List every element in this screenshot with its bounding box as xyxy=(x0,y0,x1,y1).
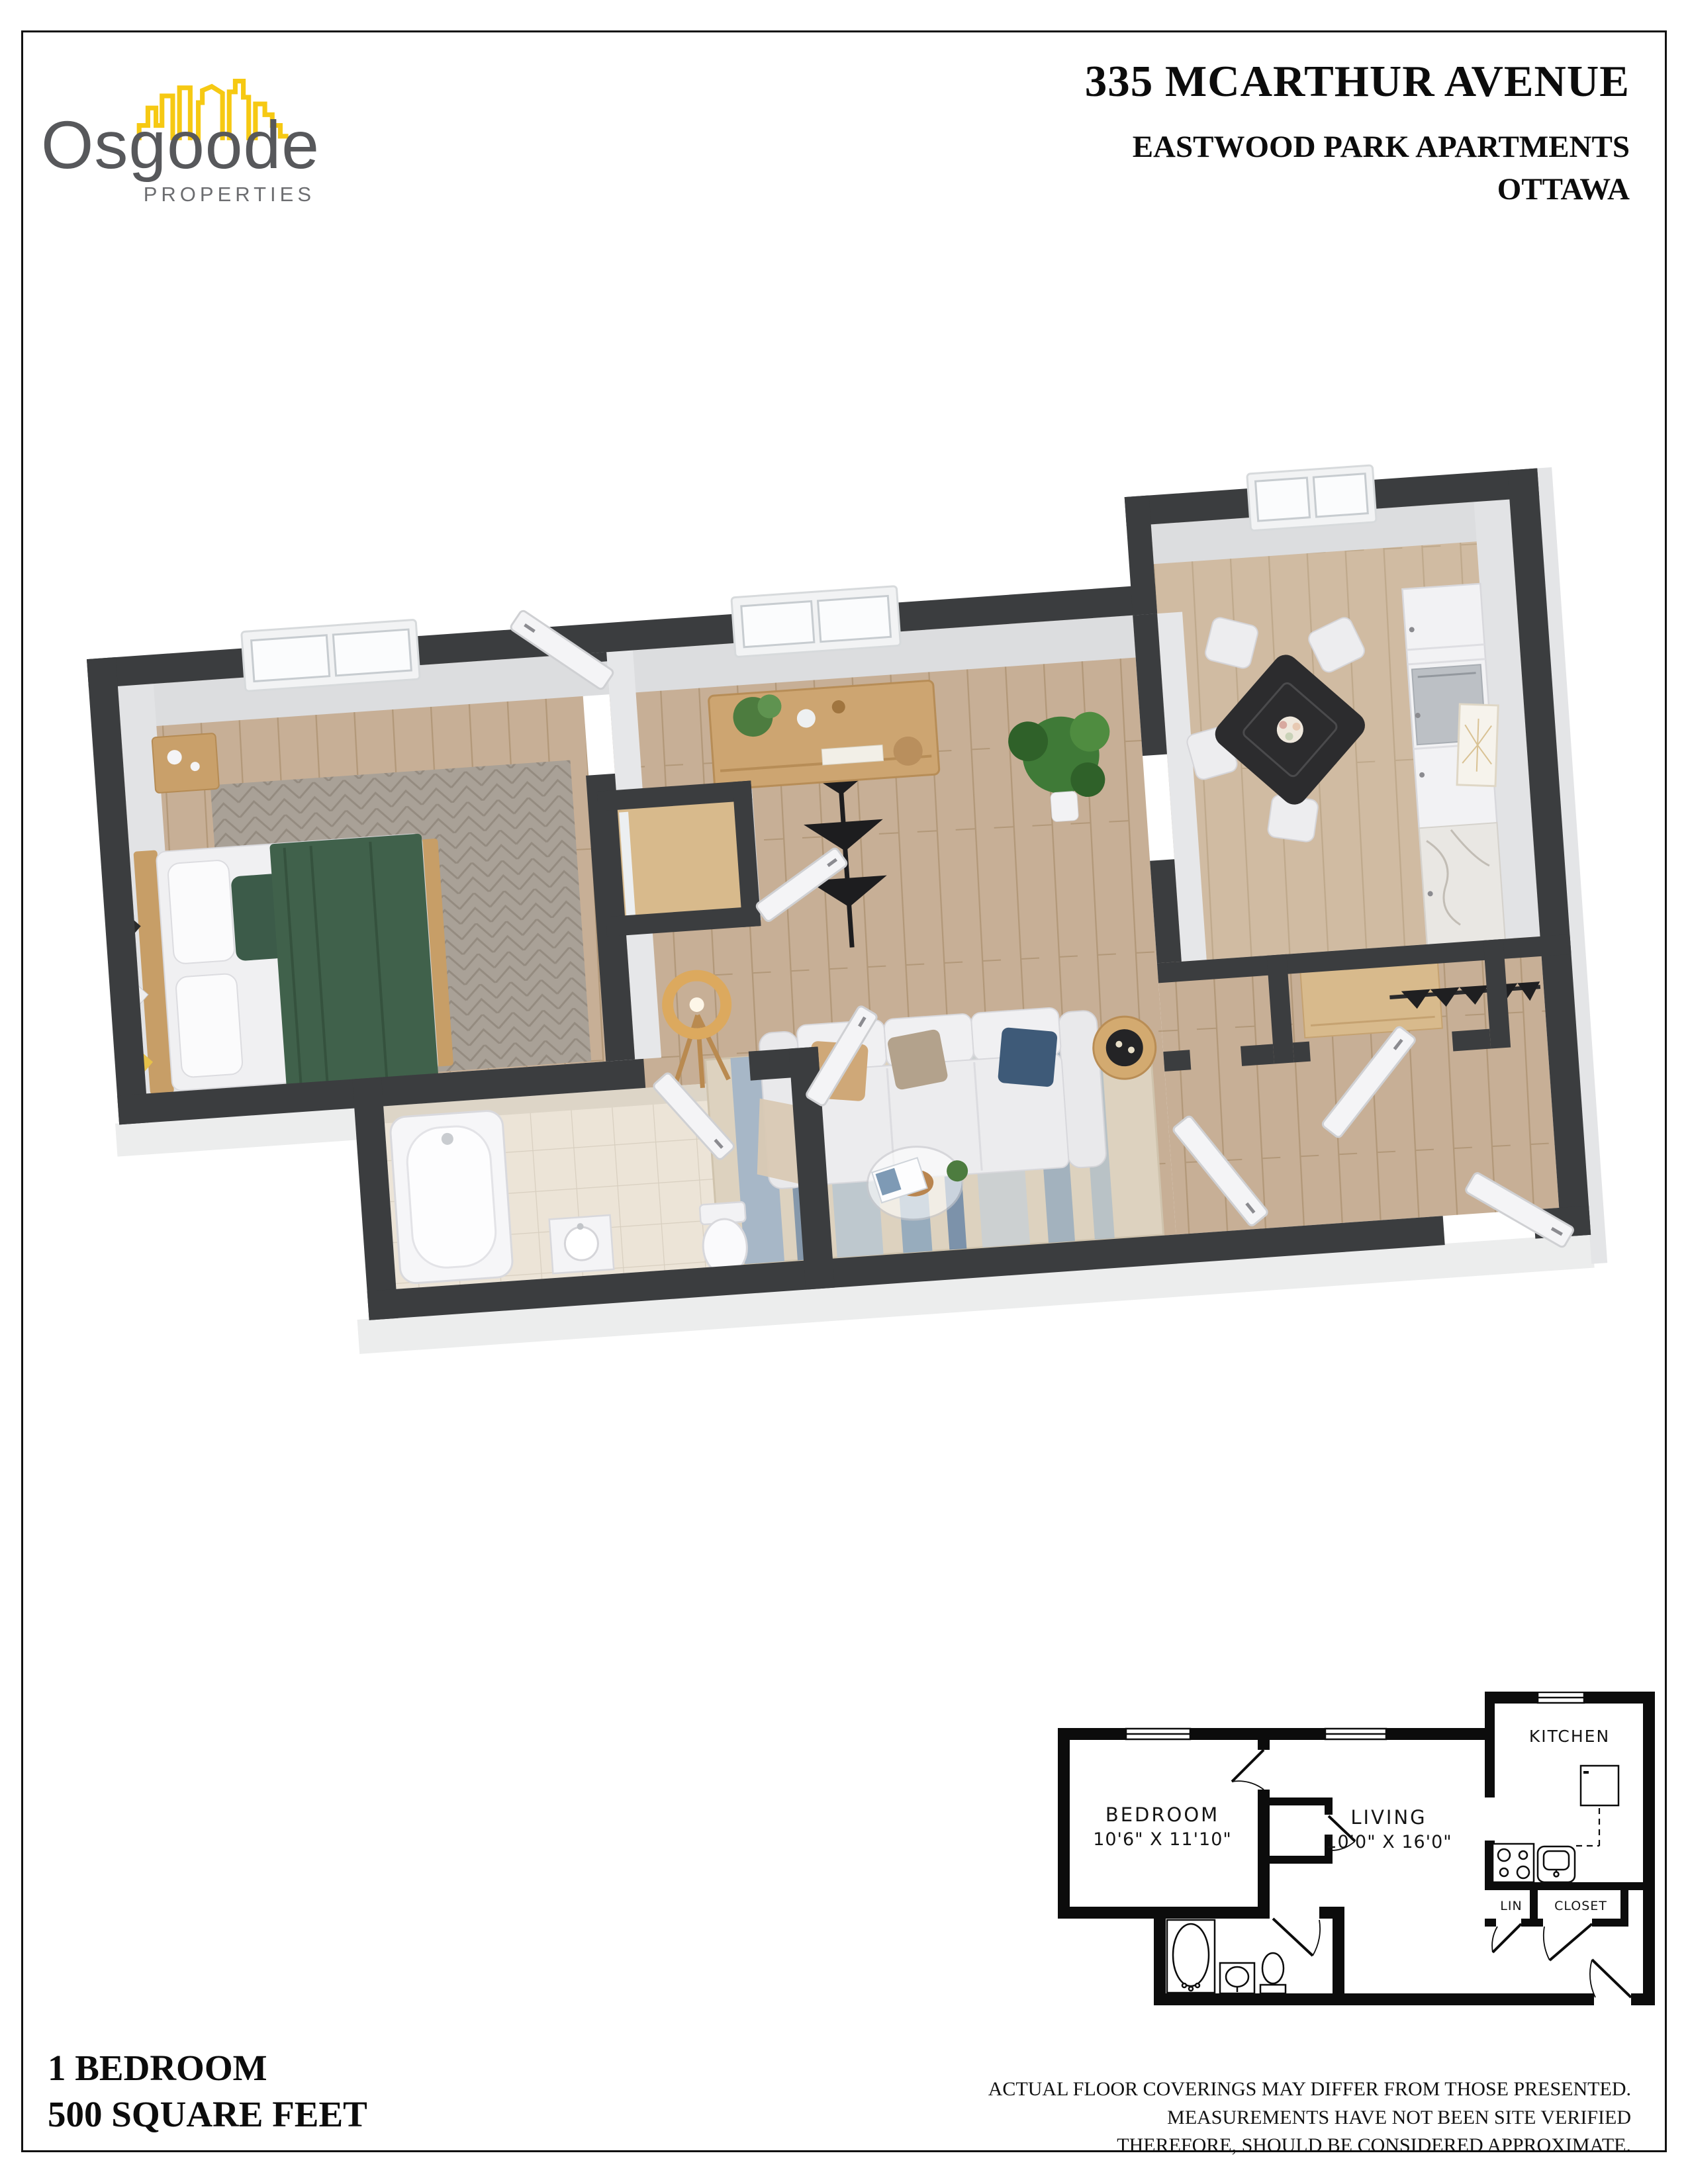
logo-name: Osgoode xyxy=(41,111,320,179)
disclaimer-line: MEASUREMENTS HAVE NOT BEEN SITE VERIFIED xyxy=(988,2104,1631,2132)
apartment-3d xyxy=(75,453,1608,1370)
unit-summary: 1 BEDROOM 500 SQUARE FEET xyxy=(48,2045,367,2138)
bathroom-vanity xyxy=(549,1215,614,1273)
floorplan-2d: BEDROOM 10'6" X 11'10" LIVING 10'0" X 16… xyxy=(1055,1692,1658,2017)
window-bedroom xyxy=(242,619,420,691)
lin-label: LIN xyxy=(1500,1899,1522,1913)
kitchen-label: KITCHEN xyxy=(1529,1727,1610,1746)
bedroom-label: BEDROOM xyxy=(1105,1803,1219,1826)
disclaimer-line: ACTUAL FLOOR COVERINGS MAY DIFFER FROM T… xyxy=(988,2075,1631,2104)
closet-label: CLOSET xyxy=(1554,1899,1607,1913)
property-address: 335 MCARTHUR AVENUE xyxy=(1085,58,1630,105)
property-title-block: 335 MCARTHUR AVENUE EASTWOOD PARK APARTM… xyxy=(1085,58,1630,206)
disclaimer: ACTUAL FLOOR COVERINGS MAY DIFFER FROM T… xyxy=(988,2075,1631,2160)
bed xyxy=(133,831,454,1101)
living-label: LIVING xyxy=(1350,1806,1427,1829)
living-dims: 10'0" X 16'0" xyxy=(1325,1832,1452,1852)
bedroom-dims: 10'6" X 11'10" xyxy=(1093,1829,1232,1850)
property-building: EASTWOOD PARK APARTMENTS xyxy=(1085,131,1630,163)
nightstand xyxy=(152,733,219,793)
unit-type: 1 BEDROOM xyxy=(48,2045,367,2091)
unit-area: 500 SQUARE FEET xyxy=(48,2091,367,2138)
property-city: OTTAWA xyxy=(1085,173,1630,206)
bathtub xyxy=(389,1110,513,1284)
flyer-page: Osgoode PROPERTIES 335 MCARTHUR AVENUE E… xyxy=(0,0,1688,2184)
floorplan-3d-render xyxy=(58,449,1628,1375)
kitchen-wall-art xyxy=(1452,702,1504,789)
window-living xyxy=(731,586,901,657)
osgoode-logo: Osgoode PROPERTIES xyxy=(41,53,319,205)
logo-subtitle: PROPERTIES xyxy=(144,183,315,206)
window-kitchen xyxy=(1247,465,1377,531)
console-table xyxy=(708,680,939,790)
disclaimer-line: THEREFORE, SHOULD BE CONSIDERED APPROXIM… xyxy=(988,2132,1631,2160)
